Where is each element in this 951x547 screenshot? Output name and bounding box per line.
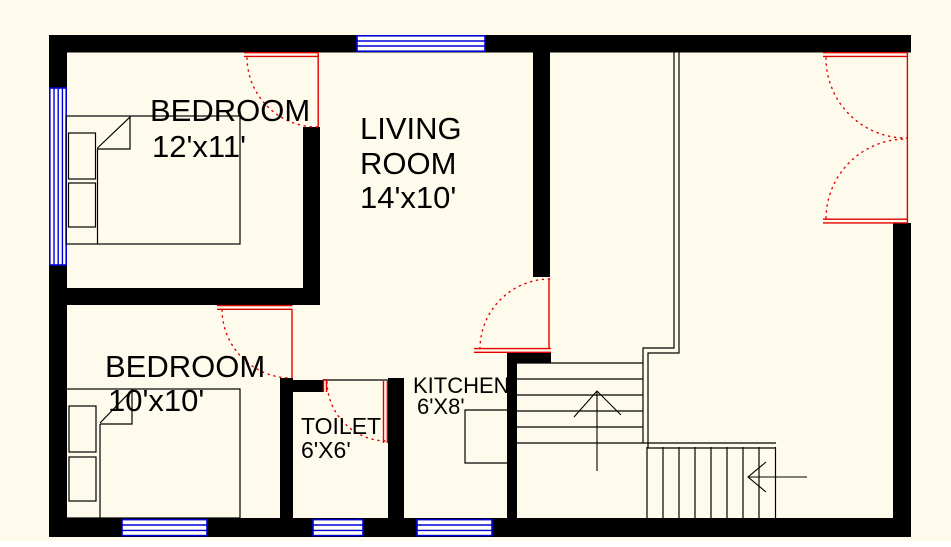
wall-living-right — [533, 52, 550, 277]
kitchen-dims: 6'X8' — [417, 394, 465, 419]
window-left-bedroom1 — [50, 88, 66, 265]
living-room-label-line2: ROOM — [360, 146, 456, 181]
wall-toilet-right — [388, 378, 404, 518]
bedroom1-dims: 12'x11' — [152, 129, 246, 164]
bedroom2-dims: 10'x10' — [108, 383, 204, 418]
toilet-label: TOILET — [301, 413, 381, 439]
window-bottom-bedroom2 — [122, 520, 207, 536]
window-bottom-toilet — [313, 520, 363, 536]
wall-right — [893, 223, 911, 537]
wall-kitchen-north — [507, 353, 551, 363]
floor-plan-drawing: BEDROOM 12'x11' LIVING ROOM 14'x10' BEDR… — [0, 0, 951, 547]
page-edge-strip — [0, 541, 951, 547]
floor-plan-canvas: BEDROOM 12'x11' LIVING ROOM 14'x10' BEDR… — [0, 0, 951, 547]
bedroom1-label: BEDROOM — [150, 93, 310, 128]
window-bottom-kitchen — [417, 520, 492, 536]
paper-background — [0, 0, 951, 547]
living-room-dims: 14'x10' — [360, 180, 456, 215]
wall-bedroom1-living — [303, 127, 320, 305]
living-room-label-line1: LIVING — [360, 111, 462, 146]
window-top-living — [357, 36, 485, 51]
wall-toilet-top — [293, 380, 323, 392]
wall-toilet-left — [280, 378, 293, 518]
wall-bedroom1-bedroom2 — [49, 288, 320, 305]
toilet-dims: 6'X6' — [301, 437, 351, 463]
bedroom2-label: BEDROOM — [105, 349, 265, 384]
